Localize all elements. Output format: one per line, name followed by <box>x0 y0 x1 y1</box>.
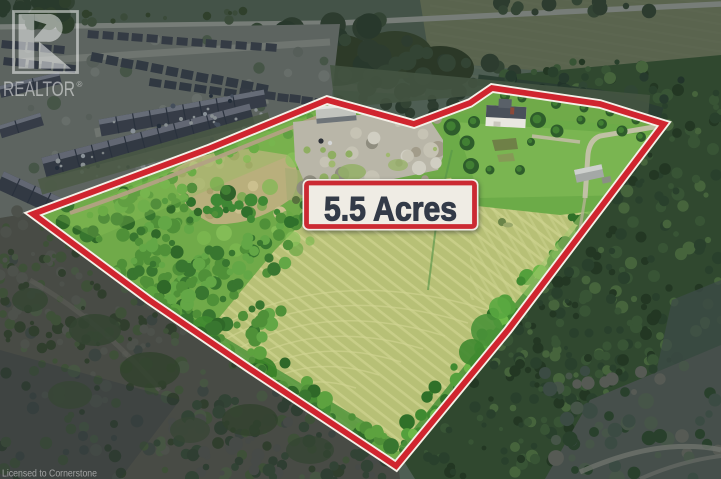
svg-text:®: ® <box>77 80 83 89</box>
svg-text:Licensed to Cornerstone: Licensed to Cornerstone <box>2 468 97 479</box>
svg-text:REALTOR: REALTOR <box>3 78 75 101</box>
svg-text:5.5 Acres: 5.5 Acres <box>324 191 457 229</box>
